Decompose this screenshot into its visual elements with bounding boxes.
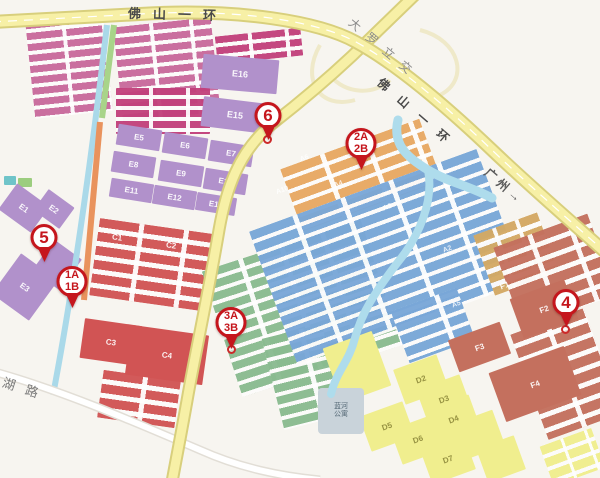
district-map: E16 E15 E5 E6 E7 E8 E9 E10 E11 E12 E13 E…: [0, 0, 600, 478]
left-canal: [53, 25, 107, 395]
pin-tail: [354, 155, 368, 170]
pin-tail: [224, 334, 238, 349]
river-branch: [331, 170, 429, 394]
pin-tail: [65, 293, 79, 308]
pin-tail: [261, 125, 275, 140]
roads-layer: [0, 0, 600, 478]
map-pin-5[interactable]: 5: [31, 224, 58, 262]
pin-tail: [559, 312, 573, 327]
central-road: [172, 0, 418, 478]
map-pin-2a-2b[interactable]: 2A2B: [346, 128, 377, 170]
map-pin-6[interactable]: 6: [255, 102, 282, 140]
ring-road-label-top: 佛山一环: [128, 3, 228, 25]
map-pin-3a-3b[interactable]: 3A3B: [216, 307, 247, 349]
central-road-casing: [172, 0, 418, 478]
map-pin-1a-1b[interactable]: 1A1B: [57, 266, 88, 308]
pin-tail: [37, 247, 51, 262]
map-pin-4[interactable]: 4: [553, 289, 580, 327]
